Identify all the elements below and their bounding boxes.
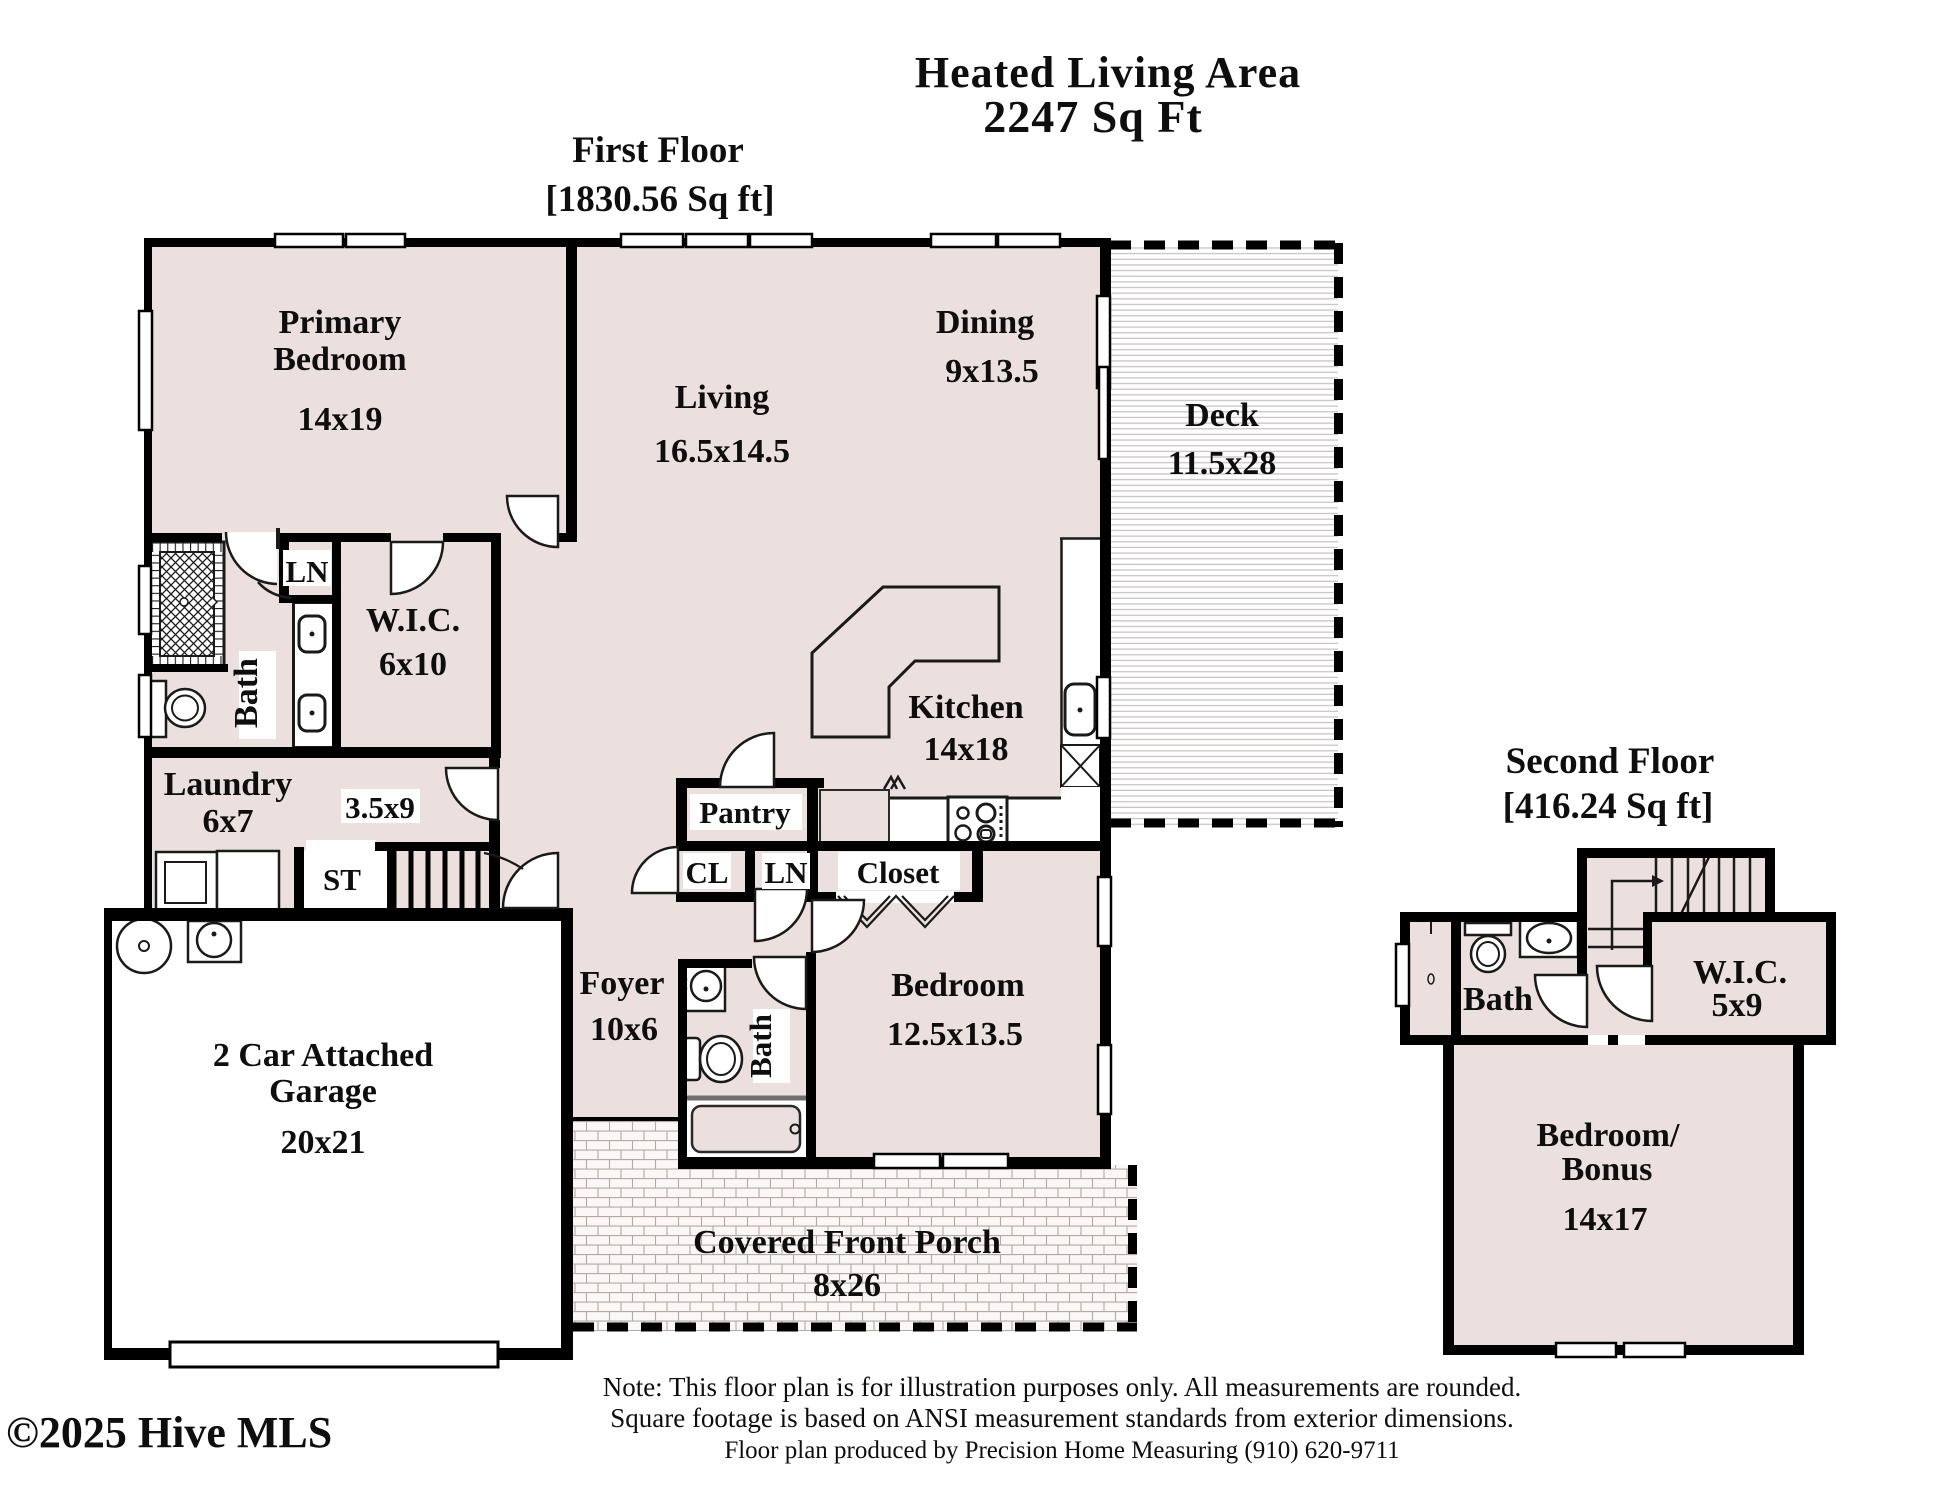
svg-text:LN: LN xyxy=(764,855,807,890)
svg-text:Foyer: Foyer xyxy=(580,965,665,1002)
svg-text:Bath: Bath xyxy=(743,1014,778,1078)
svg-text:14x17: 14x17 xyxy=(1563,1201,1648,1238)
svg-text:Garage: Garage xyxy=(269,1073,377,1110)
svg-text:Bedroom/: Bedroom/ xyxy=(1537,1117,1680,1154)
svg-text:10x6: 10x6 xyxy=(590,1011,658,1048)
svg-text:2 Car Attached: 2 Car Attached xyxy=(213,1037,433,1074)
svg-text:Second Floor: Second Floor xyxy=(1506,741,1715,782)
svg-text:Living: Living xyxy=(675,379,769,416)
svg-text:14x18: 14x18 xyxy=(924,731,1009,768)
svg-text:CL: CL xyxy=(685,855,728,890)
svg-text:3.5x9: 3.5x9 xyxy=(345,790,415,825)
svg-text:Pantry: Pantry xyxy=(699,795,791,830)
svg-text:LN: LN xyxy=(285,554,328,589)
svg-text:5x9: 5x9 xyxy=(1712,987,1763,1024)
svg-text:Heated Living Area: Heated Living Area xyxy=(915,48,1301,97)
svg-text:Bath: Bath xyxy=(1463,981,1533,1018)
svg-text:12.5x13.5: 12.5x13.5 xyxy=(887,1016,1023,1053)
svg-text:Square footage is based on ANS: Square footage is based on ANSI measurem… xyxy=(610,1403,1514,1433)
svg-text:14x19: 14x19 xyxy=(298,401,383,438)
svg-text:Bath: Bath xyxy=(228,658,265,728)
svg-text:Bedroom: Bedroom xyxy=(273,341,406,378)
svg-text:Primary: Primary xyxy=(279,304,402,341)
svg-text:2247 Sq Ft: 2247 Sq Ft xyxy=(983,91,1203,142)
svg-text:First Floor: First Floor xyxy=(572,130,744,171)
svg-text:Note: This floor plan is for i: Note: This floor plan is for illustratio… xyxy=(603,1372,1522,1402)
svg-text:[1830.56 Sq ft]: [1830.56 Sq ft] xyxy=(545,179,774,220)
svg-text:Kitchen: Kitchen xyxy=(908,689,1023,726)
svg-text:8x26: 8x26 xyxy=(813,1267,881,1304)
svg-text:[416.24 Sq ft]: [416.24 Sq ft] xyxy=(1503,786,1714,827)
svg-text:ST: ST xyxy=(323,862,361,897)
svg-text:9x13.5: 9x13.5 xyxy=(945,353,1039,390)
svg-text:11.5x28: 11.5x28 xyxy=(1168,445,1277,482)
svg-text:6x10: 6x10 xyxy=(379,646,447,683)
svg-text:Dining: Dining xyxy=(936,304,1034,341)
svg-text:Deck: Deck xyxy=(1185,397,1259,434)
svg-text:20x21: 20x21 xyxy=(281,1124,366,1161)
svg-text:©2025 Hive MLS: ©2025 Hive MLS xyxy=(6,1408,332,1457)
svg-text:16.5x14.5: 16.5x14.5 xyxy=(654,433,790,470)
svg-text:Covered Front Porch: Covered Front Porch xyxy=(693,1224,1001,1261)
svg-text:Bedroom: Bedroom xyxy=(891,967,1024,1004)
svg-text:W.I.C.: W.I.C. xyxy=(1693,954,1787,991)
svg-text:Bonus: Bonus xyxy=(1562,1151,1653,1188)
svg-text:W.I.C.: W.I.C. xyxy=(366,602,460,639)
svg-text:6x7: 6x7 xyxy=(203,803,254,840)
svg-text:Closet: Closet xyxy=(857,855,940,890)
svg-text:Floor plan produced by Precisi: Floor plan produced by Precision Home Me… xyxy=(724,1437,1399,1464)
svg-text:Laundry: Laundry xyxy=(164,766,293,803)
